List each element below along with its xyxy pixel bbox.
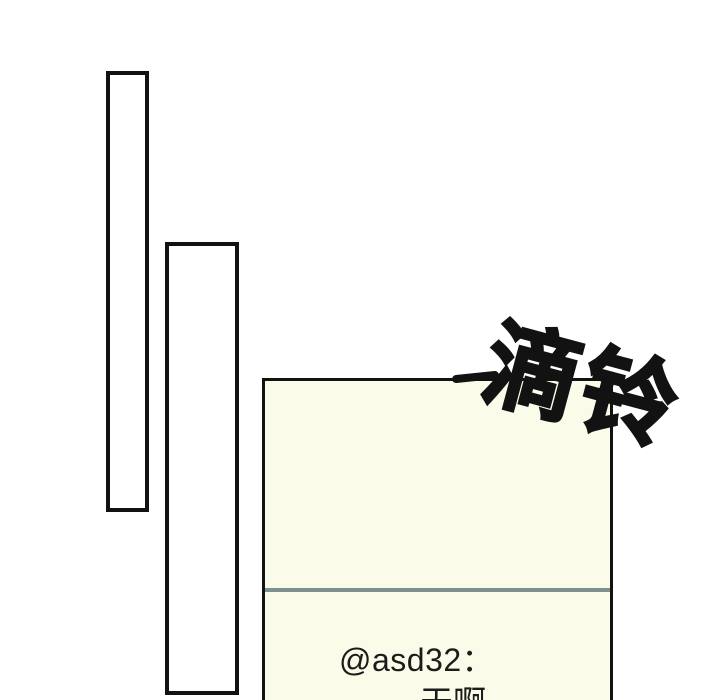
comment-username: @asd32：	[339, 643, 494, 677]
comment-message: 天啊	[420, 685, 486, 700]
comic-panel-tall-middle	[165, 242, 239, 695]
comic-page: @asd32： 天啊 滴铃	[0, 0, 720, 700]
comment-divider-line	[265, 588, 610, 592]
comic-panel-tall-left	[106, 71, 149, 512]
